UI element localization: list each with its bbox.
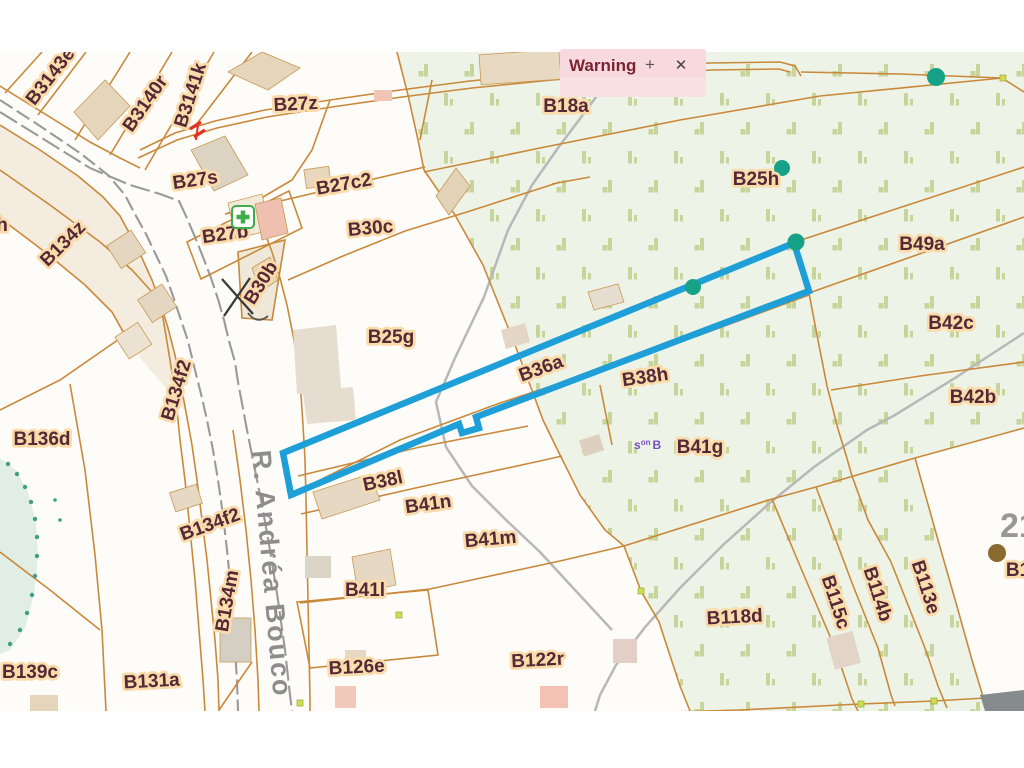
svg-text:B25h: B25h bbox=[733, 169, 779, 190]
svg-text:Warning: Warning bbox=[569, 56, 636, 75]
svg-text:B1: B1 bbox=[1006, 560, 1024, 581]
svg-text:B42b: B42b bbox=[950, 387, 996, 408]
svg-text:B122r: B122r bbox=[511, 649, 565, 673]
svg-text:B136d: B136d bbox=[13, 429, 70, 450]
svg-text:B27z: B27z bbox=[273, 93, 318, 116]
svg-text:✕: ✕ bbox=[675, 57, 688, 74]
svg-text:B139c: B139c bbox=[2, 662, 58, 683]
svg-text:B18a: B18a bbox=[543, 96, 589, 117]
svg-text:B41g: B41g bbox=[677, 437, 723, 458]
svg-text:B131a: B131a bbox=[123, 670, 180, 694]
svg-text:B41l: B41l bbox=[345, 580, 385, 601]
svg-text:B49a: B49a bbox=[899, 234, 945, 255]
svg-text:B118d: B118d bbox=[706, 606, 763, 630]
svg-text:B42c: B42c bbox=[928, 313, 974, 334]
svg-text:21: 21 bbox=[1000, 507, 1024, 545]
svg-text:B30c: B30c bbox=[347, 216, 395, 241]
svg-text:B41m: B41m bbox=[464, 527, 517, 552]
svg-text:B25g: B25g bbox=[368, 327, 414, 348]
svg-text:h: h bbox=[0, 215, 8, 236]
svg-text:B126e: B126e bbox=[328, 656, 385, 680]
svg-text:+: + bbox=[645, 55, 655, 74]
